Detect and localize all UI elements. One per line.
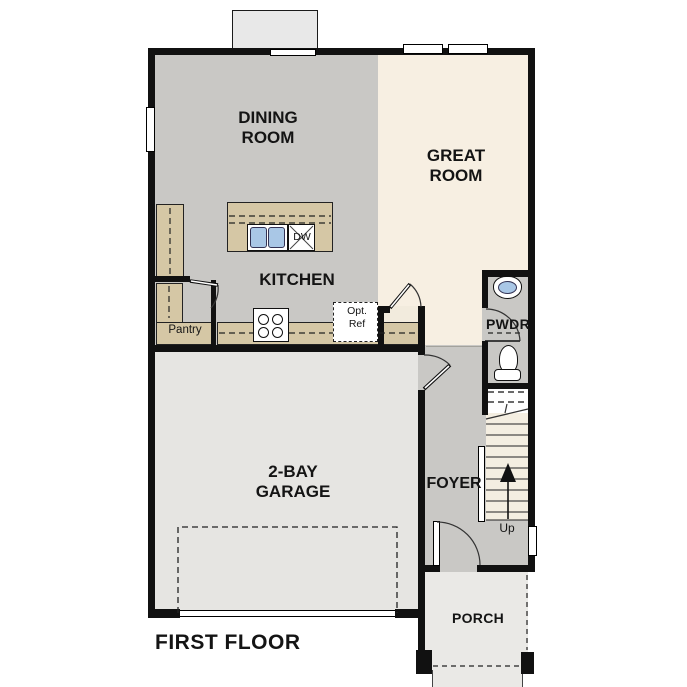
garage-door	[180, 610, 395, 617]
foyer-label: FOYER	[426, 475, 481, 494]
burner	[272, 327, 283, 338]
wall-garage-foyer-upper	[418, 345, 425, 355]
window-great-room-2	[448, 44, 488, 54]
first-floor-title: FIRST FLOOR	[155, 631, 301, 655]
burner	[272, 314, 283, 325]
first-floor-plan: DININGROOM GREATROOM KITCHEN 2-BAYGARAGE…	[0, 0, 687, 687]
pantry-shelf-vertical	[156, 283, 183, 323]
wall-kitchen-garage	[148, 345, 425, 352]
dining-room-label: DININGROOM	[238, 108, 298, 148]
pwdr-sink-basin	[498, 281, 517, 294]
wall-foyer-bottom-left	[418, 565, 440, 572]
wall-pwdr-stairs	[482, 383, 535, 389]
stairs-upper-flight	[486, 385, 528, 415]
wall-stairs-left	[482, 389, 488, 415]
porch-label: PORCH	[452, 610, 504, 627]
bay-bumpout	[232, 10, 318, 50]
range-stove	[253, 308, 289, 342]
porch-post-bottom-left	[416, 650, 432, 674]
sink-basin-left	[250, 227, 267, 248]
counter-left	[156, 204, 184, 278]
window-left-wall	[146, 107, 155, 152]
pwdr-label: PWDR	[486, 316, 530, 333]
wall-closet-right	[418, 306, 425, 345]
up-label: Up	[499, 521, 514, 535]
opt-ref-label: Opt.Ref	[347, 305, 367, 331]
porch-post-bottom-right	[521, 652, 534, 674]
garage-label: 2-BAYGARAGE	[256, 462, 331, 502]
porch-step	[432, 670, 523, 687]
dw-label: DW	[293, 231, 311, 243]
burner	[258, 314, 269, 325]
sink-basin-right	[268, 227, 285, 248]
wall-right	[528, 48, 535, 572]
wall-foyer-bottom-right	[477, 565, 535, 572]
great-foyer-boundary	[426, 346, 482, 347]
window-foyer-right	[528, 526, 537, 556]
wall-pantry-stub	[148, 276, 190, 282]
great-room-label: GREATROOM	[427, 146, 485, 186]
window-bay	[270, 49, 316, 56]
burner	[258, 327, 269, 338]
pwdr-sink	[493, 276, 522, 299]
toilet-tank	[494, 369, 521, 381]
wall-garage-bottom-left	[148, 609, 180, 618]
island-sink	[247, 224, 288, 251]
wall-pantry-right	[211, 280, 216, 345]
counter-range-wall	[217, 322, 419, 345]
kitchen-label: KITCHEN	[259, 270, 335, 290]
front-door-leaf	[433, 521, 440, 566]
wall-closet-left-stub	[378, 306, 390, 313]
pantry-label: Pantry	[168, 324, 201, 338]
stairs-treads	[486, 413, 528, 520]
window-great-room-1	[403, 44, 443, 54]
wall-pwdr-left-upper	[482, 277, 488, 308]
wall-porch-left	[418, 572, 425, 652]
wall-pwdr-left-lower	[482, 341, 488, 383]
